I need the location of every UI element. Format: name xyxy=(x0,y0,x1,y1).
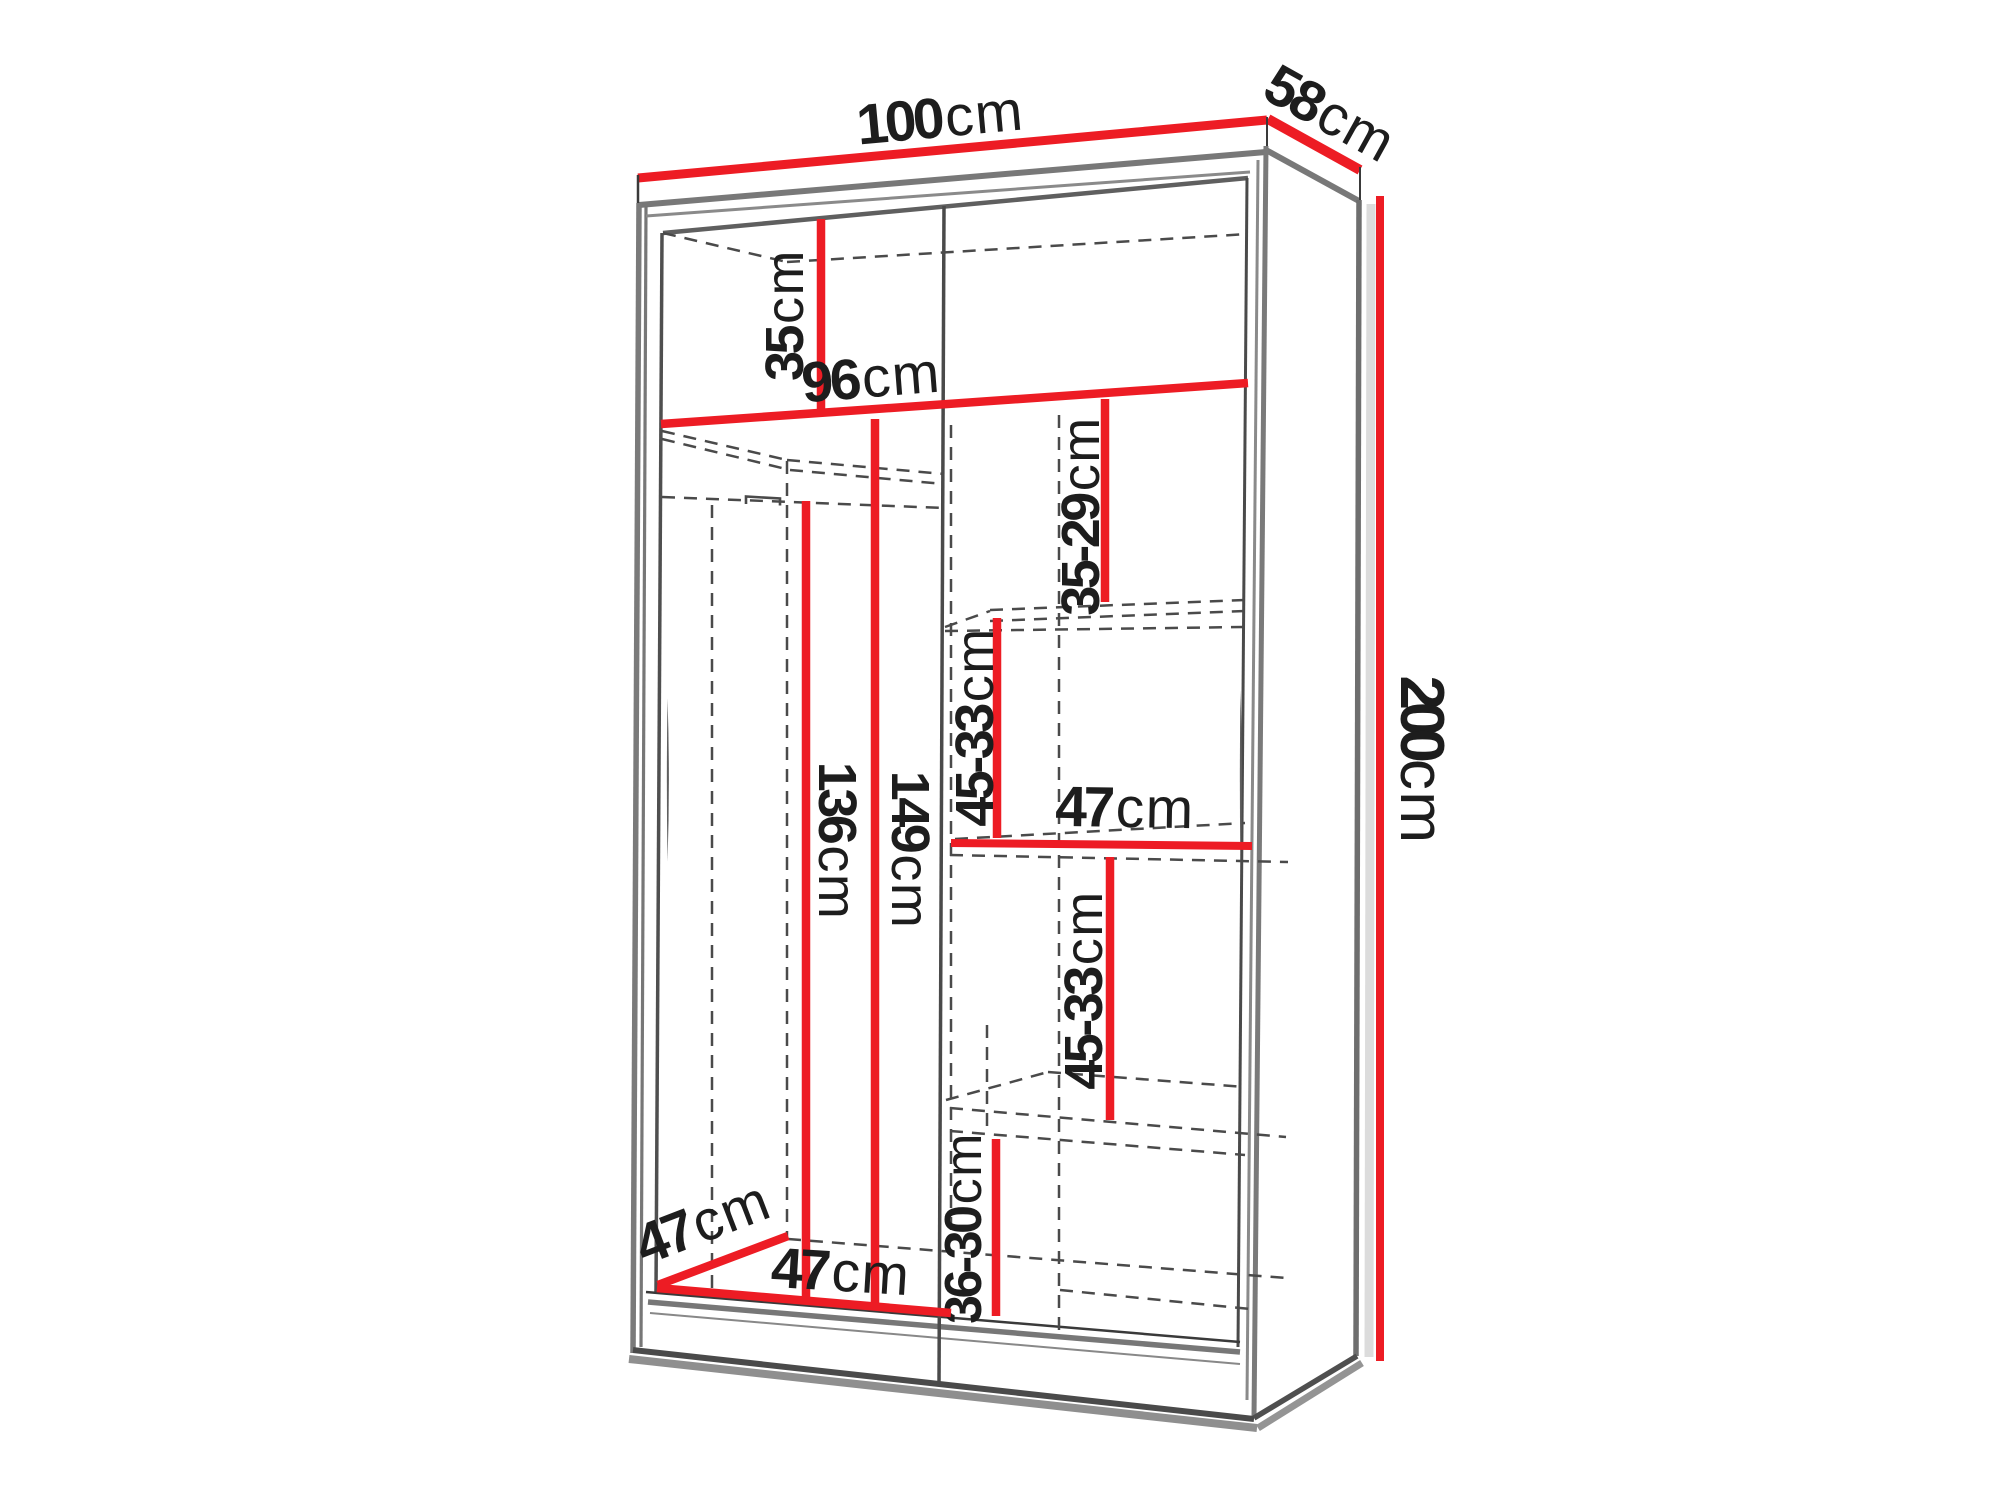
svg-text:96cm: 96cm xyxy=(799,341,943,416)
svg-text:47cm: 47cm xyxy=(769,1236,912,1308)
svg-text:45-33cm: 45-33cm xyxy=(1054,890,1114,1090)
svg-text:35-29cm: 35-29cm xyxy=(1051,416,1111,616)
svg-text:136cm: 136cm xyxy=(807,762,867,921)
svg-text:47cm: 47cm xyxy=(626,1168,779,1278)
svg-text:149cm: 149cm xyxy=(880,771,940,930)
svg-text:47cm: 47cm xyxy=(1055,775,1195,841)
svg-text:45-33cm: 45-33cm xyxy=(945,627,1005,827)
svg-text:36-30cm: 36-30cm xyxy=(935,1132,993,1324)
svg-text:200cm: 200cm xyxy=(1387,675,1456,844)
